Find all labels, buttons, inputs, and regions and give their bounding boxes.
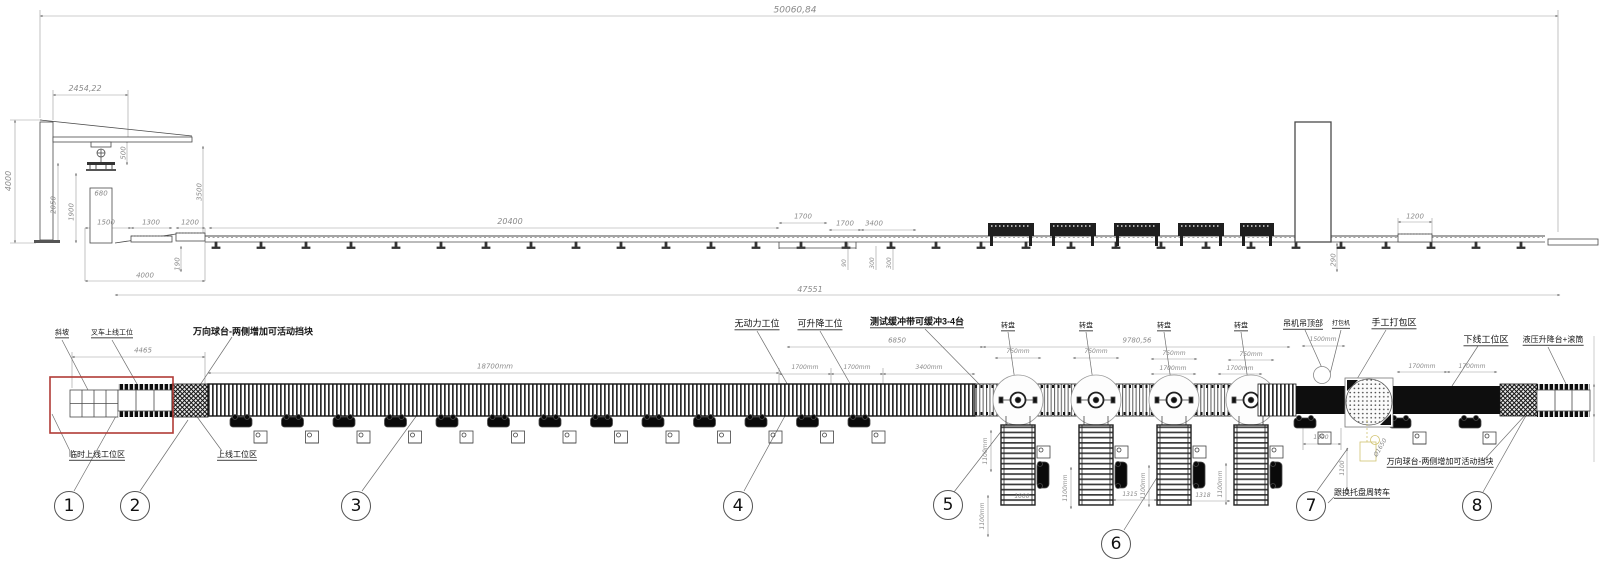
elevation-conveyor [205, 236, 1545, 249]
right-platform-icon [1398, 234, 1432, 242]
belt-conveyor-b [1393, 386, 1500, 414]
packing-equipment-icons [988, 223, 1274, 246]
plan-view [50, 329, 1594, 537]
crane-column-plan-icon [1314, 367, 1331, 384]
dimension-lines-plan [72, 336, 1594, 537]
ball-transfer-table-left-icon [172, 384, 208, 417]
drawing-canvas: 50060,842454,224000205019005003500680150… [0, 0, 1600, 569]
branch-conveyors [1001, 416, 1283, 505]
end-roller-icon [1548, 239, 1598, 245]
lift-platform-icon [176, 233, 205, 241]
elevation-view [10, 10, 1598, 295]
roller-segment-icon [1258, 384, 1296, 416]
low-platform-icon [131, 236, 172, 242]
leader-lines [52, 329, 1566, 530]
rotary-table-icon [1345, 378, 1393, 427]
cad-linework [0, 0, 1600, 569]
hydraulic-lift-roller-icon [1537, 384, 1590, 417]
control-cabinet-icon [90, 188, 112, 243]
chain-conveyor-left-icon [118, 384, 172, 417]
turntable-zone [975, 375, 1276, 425]
temp-loading-table-icon [70, 390, 118, 417]
ball-transfer-table-right-icon [1500, 384, 1537, 416]
belt-conveyor-a [1296, 386, 1345, 414]
packing-machine-elevation-icon [1295, 122, 1331, 242]
worker-stations [230, 415, 1496, 445]
main-roller-conveyor [208, 384, 975, 416]
